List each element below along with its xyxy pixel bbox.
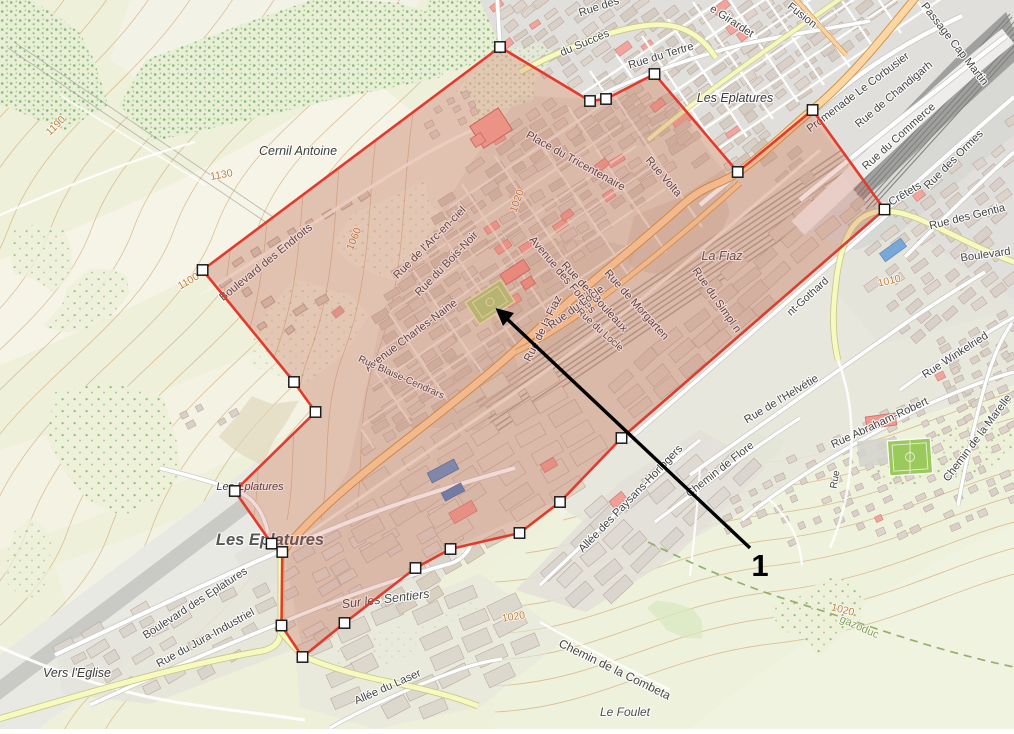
svg-text:Cernil Antoine: Cernil Antoine — [259, 144, 337, 158]
svg-text:1: 1 — [751, 548, 768, 583]
svg-text:Vers l'Eglise: Vers l'Eglise — [43, 666, 111, 680]
svg-text:Les Eplatures: Les Eplatures — [697, 91, 773, 105]
svg-text:Le Foulet: Le Foulet — [600, 705, 651, 719]
